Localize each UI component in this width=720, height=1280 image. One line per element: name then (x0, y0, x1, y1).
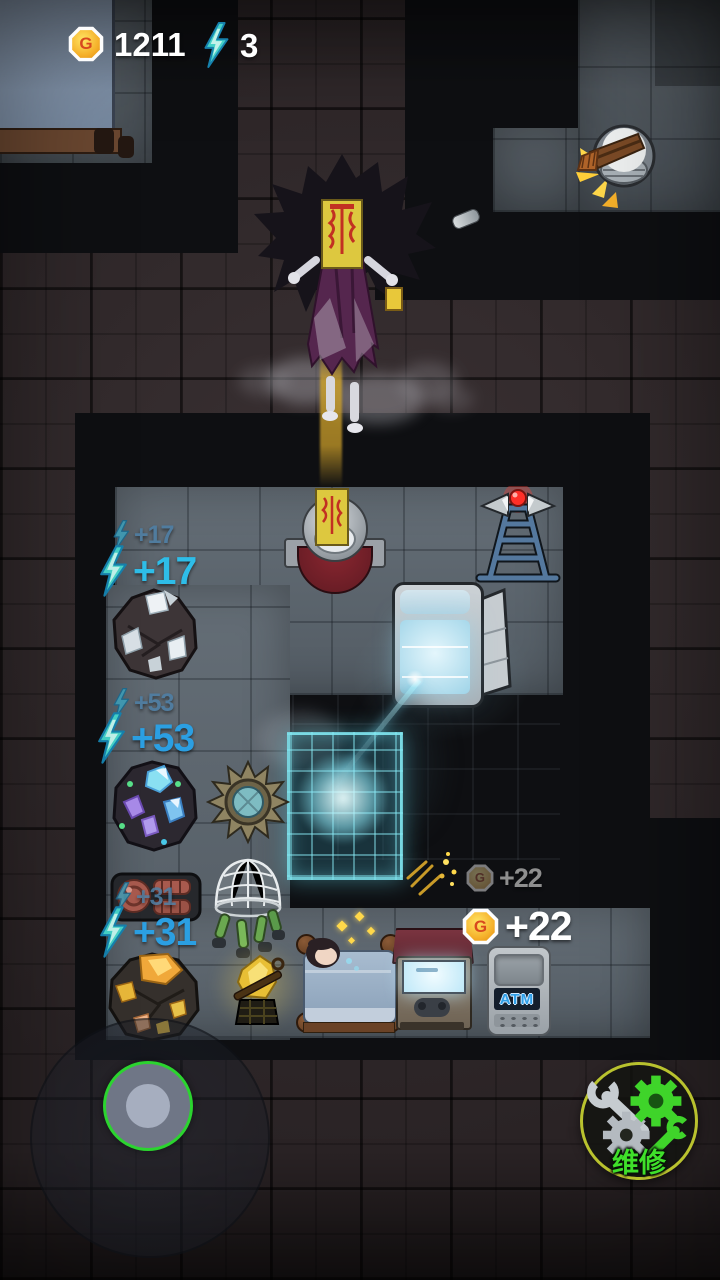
energy-counter: 3 (202, 22, 258, 68)
coin-count: 1211 (114, 28, 186, 61)
coin-counter: G 1211 (68, 26, 186, 62)
virtual-joystick-knob[interactable] (103, 1061, 193, 1151)
energy-count: 3 (240, 29, 258, 62)
coin-icon: G (68, 26, 104, 62)
energy-icon (202, 22, 230, 68)
coin-letter: G (79, 34, 92, 54)
game-viewport: ATM +17 +17 +53 +53 +31 +31 G +22 (0, 0, 720, 1280)
joystick-knob-center (126, 1084, 170, 1128)
repair-button-label: 维修 (583, 1141, 695, 1180)
repair-button[interactable]: 维修 (580, 1062, 698, 1180)
